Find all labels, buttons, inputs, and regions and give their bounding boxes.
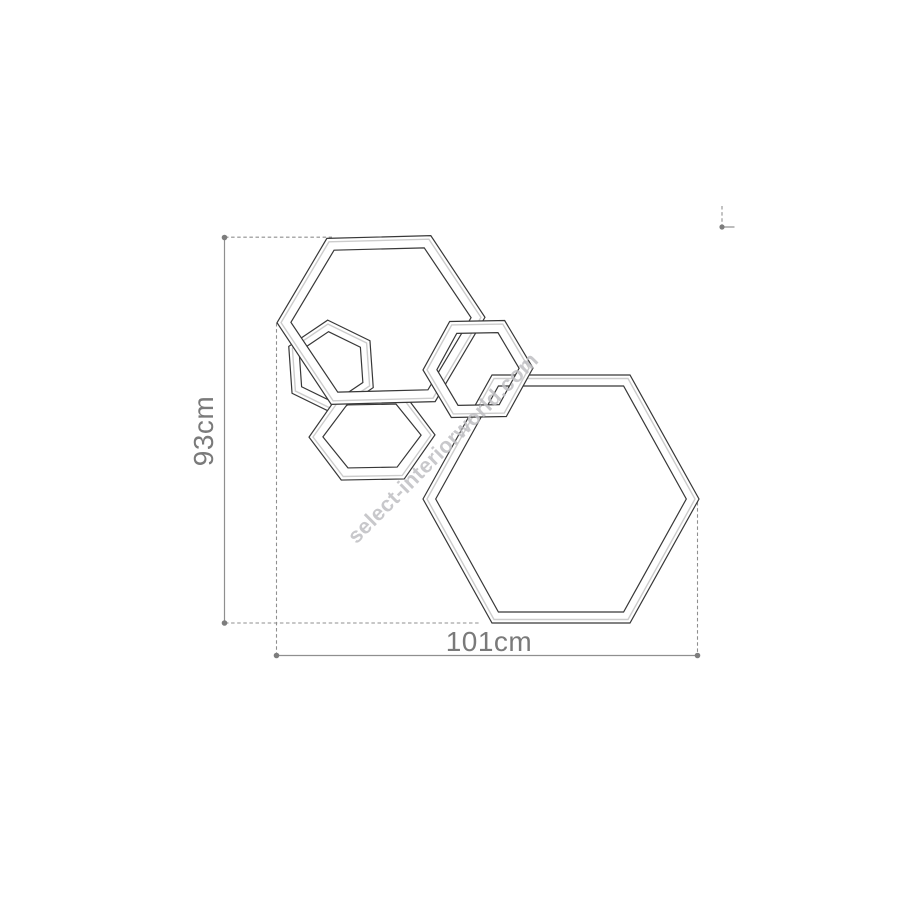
dimension-dot	[719, 224, 724, 229]
width-dimension-label: 101cm	[446, 626, 533, 657]
dimension-width: 101cm	[274, 626, 701, 658]
drawing-svg: 93cm 101cm select-interiorworld.com	[0, 0, 900, 900]
dimension-dot	[695, 653, 701, 659]
hexagon-large-top-left-bevel-line	[279, 238, 483, 402]
hexagon-cluster	[275, 234, 699, 623]
dimension-dot	[222, 620, 228, 626]
technical-drawing-canvas: 93cm 101cm select-interiorworld.com	[0, 0, 900, 900]
hexagon-large-top-left-frame	[275, 234, 487, 405]
hexagon-large-top-left	[275, 234, 487, 405]
dimension-height: 93cm	[188, 235, 227, 626]
corner-reference-mark	[719, 206, 734, 230]
height-dimension-label: 93cm	[188, 396, 219, 466]
dimension-dot	[222, 235, 228, 241]
dimension-dot	[274, 653, 280, 659]
